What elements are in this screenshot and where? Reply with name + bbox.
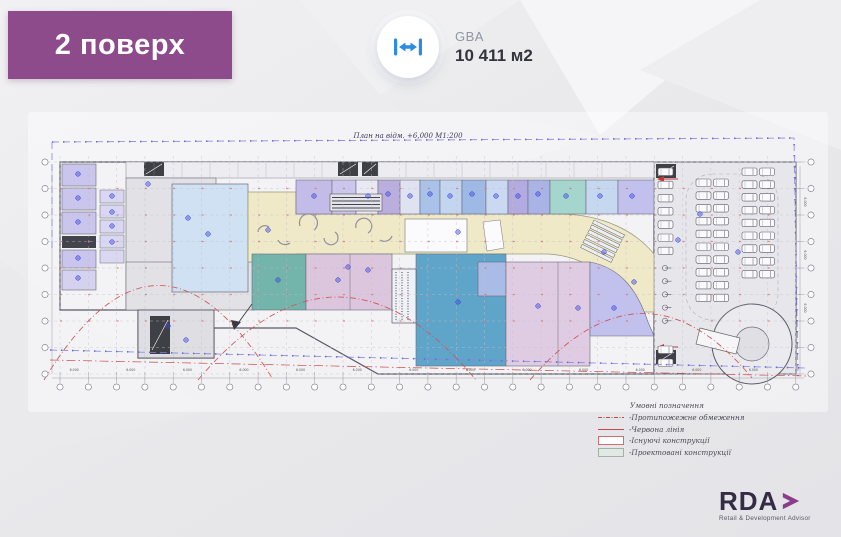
svg-text:6.000: 6.000 bbox=[803, 197, 807, 206]
svg-text:6.000: 6.000 bbox=[803, 303, 807, 312]
legend-item-designed: -Проектовані конструкції bbox=[598, 448, 793, 457]
legend-item-label: -Існуючі конструкції bbox=[629, 436, 709, 445]
rda-arrow-icon bbox=[781, 491, 801, 511]
svg-text:6.000: 6.000 bbox=[296, 368, 305, 372]
red-outline-swatch bbox=[598, 436, 624, 445]
legend-item-fire-limit: -Протипожежне обмеження bbox=[598, 413, 793, 422]
red-solid-swatch bbox=[598, 425, 624, 434]
width-arrows-icon bbox=[391, 36, 425, 58]
plan-legend: Умовні позначення -Протипожежне обмеженн… bbox=[598, 401, 793, 459]
svg-text:6.000: 6.000 bbox=[749, 368, 758, 372]
svg-text:6.000: 6.000 bbox=[803, 250, 807, 259]
plan-title: План на відм. +6,000 М1:200 bbox=[352, 132, 463, 140]
legend-item-existing: -Існуючі конструкції bbox=[598, 436, 793, 445]
svg-text:6.000: 6.000 bbox=[70, 368, 79, 372]
red-dashdot-swatch bbox=[598, 413, 624, 422]
rda-logo-text: RDA bbox=[719, 488, 778, 514]
svg-text:6.000: 6.000 bbox=[522, 368, 531, 372]
svg-text:6.000: 6.000 bbox=[692, 368, 701, 372]
green-fill-swatch bbox=[598, 448, 624, 457]
legend-item-label: -Червона лінія bbox=[629, 425, 684, 434]
gba-text: GBA 10 411 м2 bbox=[455, 29, 533, 66]
svg-text:6.000: 6.000 bbox=[636, 368, 645, 372]
legend-item-label: -Протипожежне обмеження bbox=[629, 413, 744, 422]
floor-plan: 6.0006.0006.0006.0006.0006.0006.0006.000… bbox=[38, 122, 818, 407]
gba-icon-circle bbox=[377, 16, 439, 78]
svg-text:6.000: 6.000 bbox=[466, 368, 475, 372]
gba-module: GBA 10 411 м2 bbox=[377, 16, 533, 78]
rda-tagline: Retail & Development Advisor bbox=[719, 515, 811, 522]
svg-text:6.000: 6.000 bbox=[126, 368, 135, 372]
svg-text:6.000: 6.000 bbox=[579, 368, 588, 372]
legend-item-label: -Проектовані конструкції bbox=[629, 448, 731, 457]
gba-value: 10 411 м2 bbox=[455, 46, 533, 66]
rda-logo-row: RDA bbox=[719, 488, 811, 514]
svg-text:6.000: 6.000 bbox=[183, 368, 192, 372]
rda-logo: RDA Retail & Development Advisor bbox=[719, 488, 811, 522]
legend-title: Умовні позначення bbox=[630, 401, 793, 410]
svg-text:6.000: 6.000 bbox=[409, 368, 418, 372]
svg-text:6.000: 6.000 bbox=[239, 368, 248, 372]
svg-text:6.000: 6.000 bbox=[353, 368, 362, 372]
gba-label: GBA bbox=[455, 29, 533, 44]
legend-item-red-line: -Червона лінія bbox=[598, 425, 793, 434]
floor-badge-label: 2 поверх bbox=[55, 29, 185, 62]
slide: 2 поверх GBA 10 411 м2 bbox=[0, 0, 841, 537]
floor-badge: 2 поверх bbox=[8, 11, 232, 79]
